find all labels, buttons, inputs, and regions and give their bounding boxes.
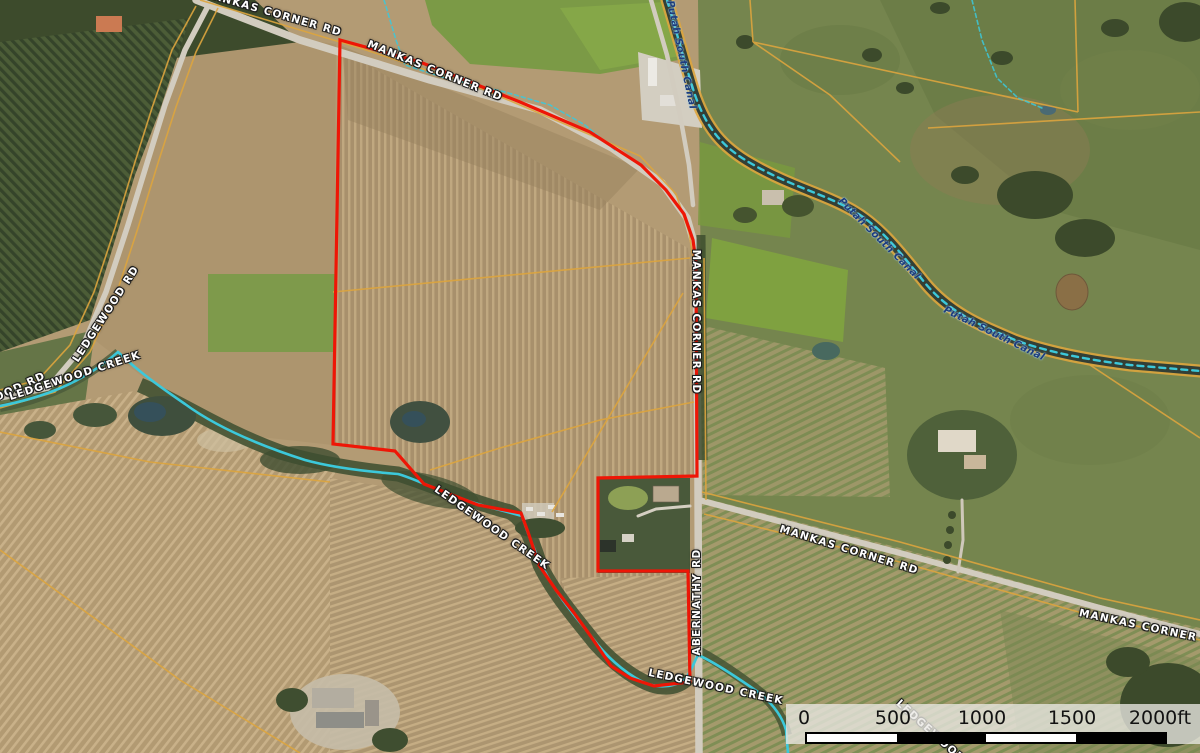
tree-cluster <box>1055 219 1115 257</box>
tree <box>946 526 954 534</box>
tree <box>930 2 950 14</box>
dark-barn <box>600 540 616 552</box>
tree <box>991 51 1013 65</box>
pond-small <box>812 342 840 360</box>
scale-segment <box>897 734 987 742</box>
vehicle <box>556 513 564 517</box>
scale-bar-segments <box>805 732 1167 744</box>
scale-segment <box>1076 734 1166 742</box>
scale-segment <box>986 734 1076 742</box>
tree <box>1101 19 1129 37</box>
hill-shade <box>1060 50 1200 130</box>
tree <box>948 511 956 519</box>
vehicle <box>537 512 545 516</box>
tree <box>951 166 979 184</box>
farmhouse <box>653 486 679 502</box>
scale-tick-1500: 1500 <box>1048 707 1096 729</box>
trees <box>24 421 56 439</box>
tree-line-road-east <box>701 235 703 460</box>
scale-bar: 0 500 1000 1500 2000ft <box>786 704 1200 744</box>
scale-tick-500: 500 <box>875 707 911 729</box>
trees <box>782 195 814 217</box>
tree-cluster <box>1106 647 1150 677</box>
scale-tick-2000ft: 2000ft <box>1129 707 1191 729</box>
estate-trees <box>907 410 1017 500</box>
barn <box>365 700 379 726</box>
pasture-shade <box>1010 375 1170 465</box>
satellite-imagery-layer <box>0 0 1200 753</box>
green-patch-center-west <box>208 274 336 352</box>
house-top-left <box>96 16 122 32</box>
trees <box>260 446 340 474</box>
barn <box>316 712 364 728</box>
vehicle <box>526 507 533 511</box>
trees <box>276 688 308 712</box>
scale-tick-1000: 1000 <box>958 707 1006 729</box>
house-right-of-road <box>762 190 784 205</box>
trees <box>73 403 117 427</box>
aerial-parcel-map: MANKAS CORNER RD MANKAS CORNER RD MANKAS… <box>0 0 1200 753</box>
pond <box>134 402 166 422</box>
trees <box>733 207 757 223</box>
homestead-lawn <box>608 486 648 510</box>
barn <box>312 688 354 708</box>
tree <box>943 556 951 564</box>
pond <box>402 411 426 427</box>
tree-cluster <box>997 171 1073 219</box>
tree <box>944 541 952 549</box>
estate-house <box>938 430 976 452</box>
tree <box>736 35 754 49</box>
tree <box>896 82 914 94</box>
trees <box>372 728 408 752</box>
pond-brown <box>1056 274 1088 310</box>
shed <box>622 534 634 542</box>
tree <box>862 48 882 62</box>
estate-building <box>964 455 986 469</box>
scale-segment <box>807 734 897 742</box>
scale-tick-0: 0 <box>798 707 810 729</box>
barn <box>648 58 657 86</box>
